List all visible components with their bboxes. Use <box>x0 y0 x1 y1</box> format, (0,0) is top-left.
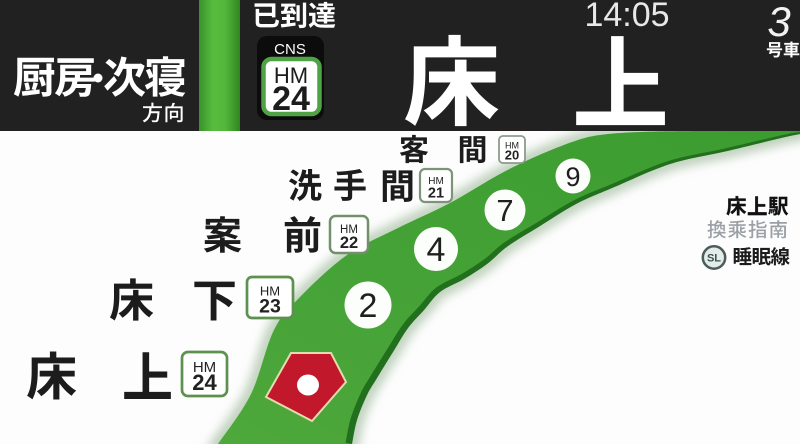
svg-text:4: 4 <box>427 231 446 269</box>
svg-text:14:05: 14:05 <box>584 0 669 34</box>
svg-text:3: 3 <box>767 0 790 45</box>
svg-text:23: 23 <box>259 296 281 318</box>
svg-text:9: 9 <box>565 162 580 192</box>
svg-text:24: 24 <box>272 80 310 118</box>
svg-text:22: 22 <box>340 234 358 252</box>
svg-text:SL: SL <box>707 253 721 265</box>
svg-text:7: 7 <box>496 193 513 228</box>
svg-text:21: 21 <box>428 186 444 202</box>
svg-text:24: 24 <box>192 370 217 395</box>
svg-text:20: 20 <box>505 147 519 162</box>
svg-text:CNS: CNS <box>274 41 306 58</box>
svg-text:2: 2 <box>359 287 378 325</box>
